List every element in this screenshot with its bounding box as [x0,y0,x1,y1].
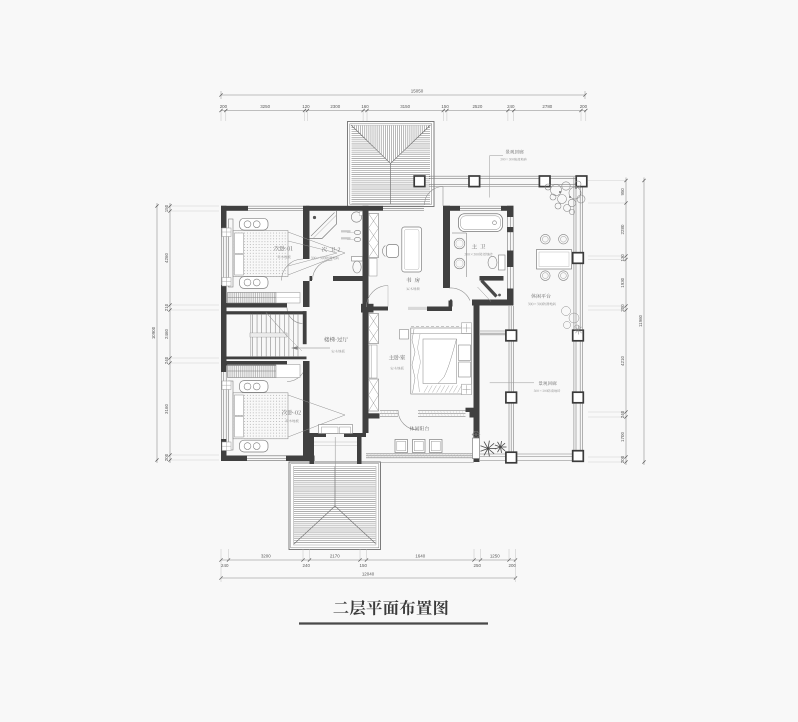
svg-text:950: 950 [620,188,625,196]
svg-text:4210: 4210 [620,356,625,366]
svg-text:240: 240 [507,104,515,109]
svg-text:160: 160 [361,104,369,109]
svg-text:4260: 4260 [164,253,169,263]
svg-text:200: 200 [620,455,625,463]
svg-text:200: 200 [580,104,588,109]
svg-text:250: 250 [474,563,482,568]
svg-text:11960: 11960 [638,314,643,327]
svg-text:130: 130 [620,254,625,262]
svg-text:200: 200 [620,304,625,312]
svg-text:240: 240 [620,410,625,418]
svg-text:2300: 2300 [330,104,340,109]
svg-text:3160: 3160 [164,404,169,414]
svg-text:240: 240 [303,563,311,568]
svg-text:240: 240 [164,356,169,364]
svg-text:12040: 12040 [362,572,375,577]
svg-text:200: 200 [220,104,228,109]
svg-text:1640: 1640 [415,554,425,559]
svg-text:1700: 1700 [620,432,625,442]
svg-text:2170: 2170 [330,554,340,559]
svg-text:240: 240 [221,563,229,568]
svg-text:2520: 2520 [472,104,482,109]
svg-text:2460: 2460 [164,329,169,339]
svg-text:3250: 3250 [260,104,270,109]
svg-text:3200: 3200 [261,554,271,559]
svg-text:200: 200 [164,453,169,461]
svg-text:1930: 1930 [620,277,625,287]
svg-text:150: 150 [441,104,449,109]
svg-text:1250: 1250 [490,554,500,559]
svg-text:150: 150 [164,204,169,212]
svg-text:210: 210 [164,303,169,311]
svg-text:200: 200 [509,563,517,568]
svg-text:2280: 2280 [620,224,625,234]
svg-text:3150: 3150 [400,104,410,109]
svg-text:10900: 10900 [151,326,156,339]
svg-text:150: 150 [360,563,368,568]
svg-text:2780: 2780 [542,104,552,109]
svg-text:120: 120 [302,104,310,109]
svg-text:15050: 15050 [411,88,424,93]
